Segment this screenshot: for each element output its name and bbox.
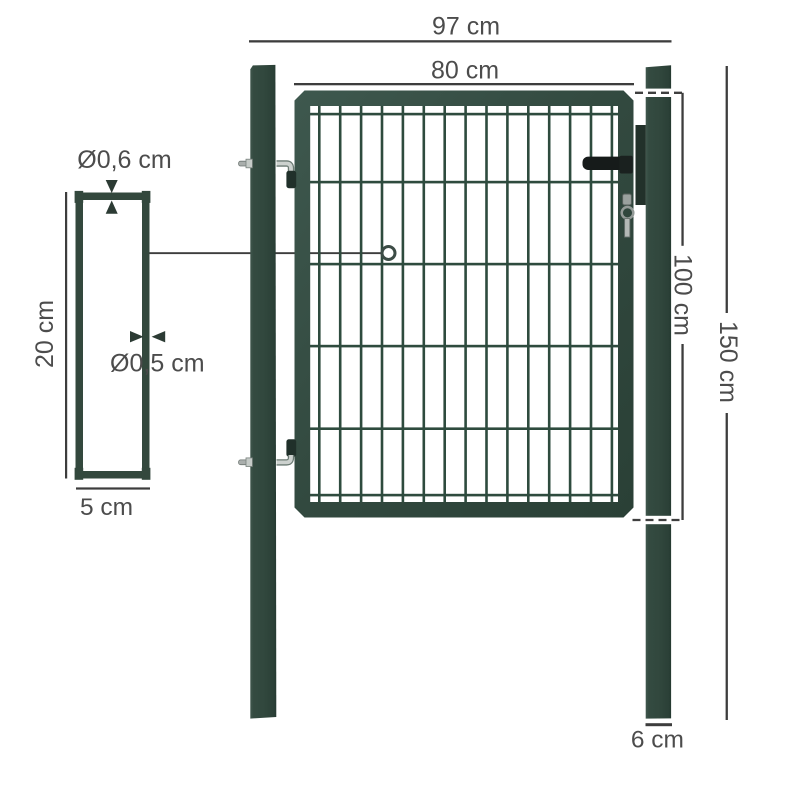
svg-text:97 cm: 97 cm bbox=[432, 13, 500, 41]
svg-text:100 cm: 100 cm bbox=[669, 254, 697, 336]
svg-text:Ø0,5 cm: Ø0,5 cm bbox=[110, 350, 204, 378]
svg-text:6 cm: 6 cm bbox=[631, 727, 684, 754]
svg-text:80 cm: 80 cm bbox=[431, 57, 499, 85]
svg-text:Ø0,6 cm: Ø0,6 cm bbox=[77, 146, 171, 174]
svg-text:150 cm: 150 cm bbox=[714, 321, 742, 403]
svg-text:20 cm: 20 cm bbox=[31, 300, 59, 368]
svg-text:5 cm: 5 cm bbox=[80, 494, 133, 521]
